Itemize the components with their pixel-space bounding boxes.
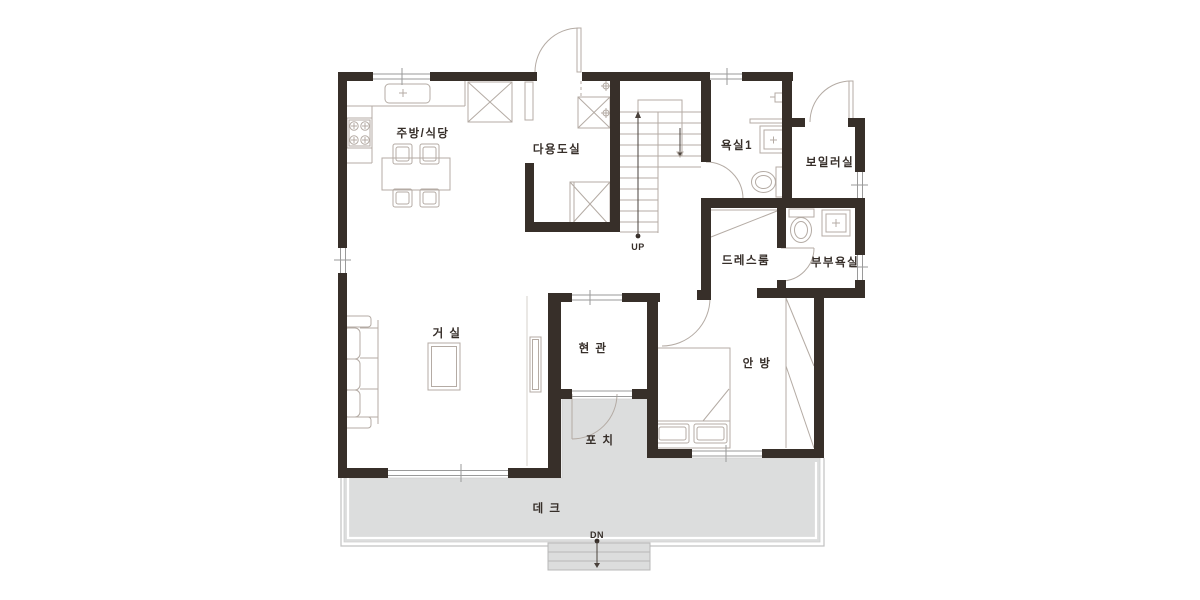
label-living: 거 실 xyxy=(433,326,462,340)
staircase-down xyxy=(548,539,650,570)
dining-table xyxy=(382,158,450,190)
dressroom-rod xyxy=(711,210,777,237)
up-arrow xyxy=(635,111,641,238)
label-porch: 포 치 xyxy=(586,433,615,447)
label-bathroom1: 욕실1 xyxy=(721,138,753,152)
washer-icon xyxy=(570,97,610,226)
opening-entrance-bottom xyxy=(572,391,632,397)
sofa xyxy=(343,316,378,428)
label-stairs-down: DN xyxy=(590,530,604,540)
label-stairs-up: UP xyxy=(631,242,645,252)
refrigerator-icon xyxy=(468,82,512,122)
kitchen-sink-icon xyxy=(385,84,430,103)
floorplan-canvas: 주방/식당 다용도실 욕실1 보일러실 드레스룸 부부욕실 거 실 현 관 안 … xyxy=(0,0,1200,600)
bed xyxy=(655,348,730,448)
window-boiler xyxy=(851,172,868,198)
label-master-bedroom: 안 방 xyxy=(743,356,772,370)
window-bathroom1 xyxy=(710,68,742,85)
label-boiler: 보일러실 xyxy=(806,155,854,169)
window-kitchen xyxy=(373,68,430,85)
console-cabinet xyxy=(530,337,541,392)
opening-entrance-top xyxy=(572,290,622,305)
label-master-bathroom: 부부욕실 xyxy=(811,255,859,269)
wardrobe xyxy=(786,298,814,448)
staircase-up xyxy=(620,100,701,233)
stove-icon xyxy=(347,118,372,148)
master-vanity-icon xyxy=(822,210,850,236)
label-deck: 데 크 xyxy=(533,501,562,515)
toilet-icon xyxy=(752,167,788,197)
coffee-table xyxy=(428,343,460,390)
deck-area xyxy=(341,399,824,546)
master-toilet-icon xyxy=(789,209,814,243)
label-entrance: 현 관 xyxy=(579,341,608,355)
label-kitchen-dining: 주방/식당 xyxy=(396,126,449,140)
window-living-left xyxy=(334,248,351,273)
label-dressroom: 드레스룸 xyxy=(722,253,770,267)
door-arcs xyxy=(535,28,853,439)
dining-chair xyxy=(393,144,439,207)
floorplan-drawing: 주방/식당 다용도실 욕실1 보일러실 드레스룸 부부욕실 거 실 현 관 안 … xyxy=(0,0,1200,600)
label-utility: 다용도실 xyxy=(533,142,581,156)
utility-cabinet xyxy=(525,82,533,120)
